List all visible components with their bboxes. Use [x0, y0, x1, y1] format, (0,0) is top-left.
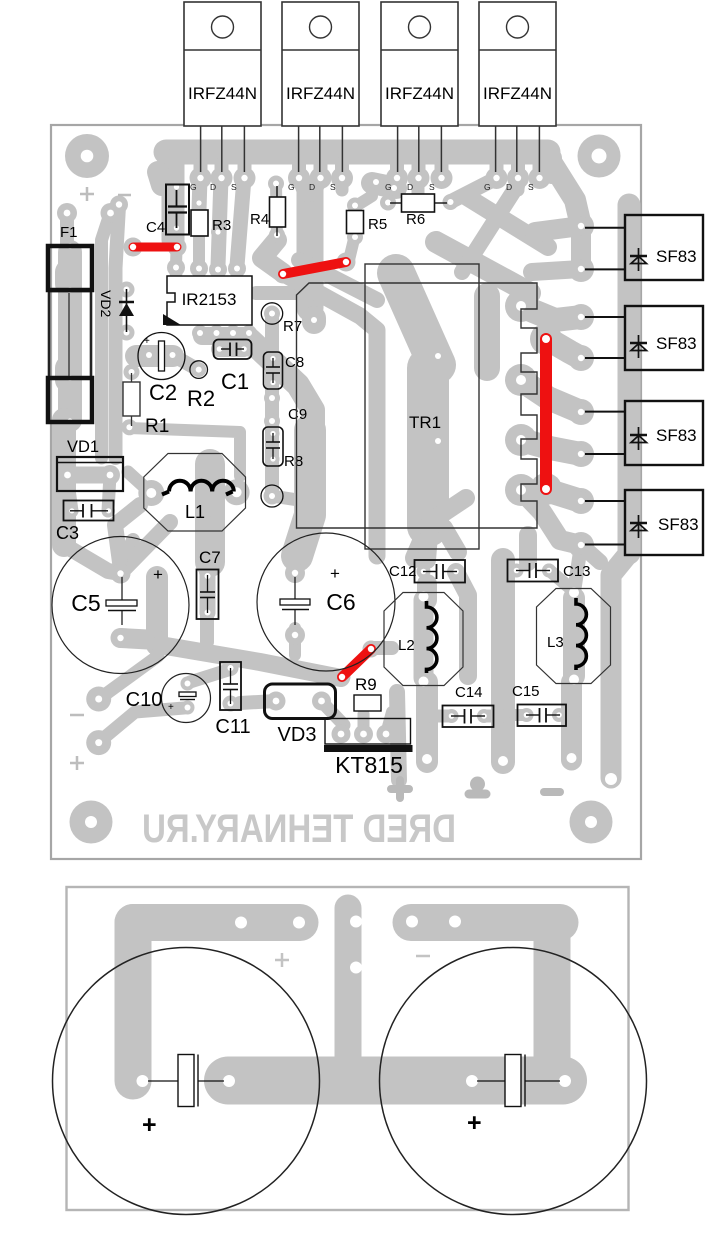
svg-text:C14: C14 [455, 684, 483, 701]
svg-text:S: S [231, 182, 237, 192]
svg-text:D: D [506, 182, 512, 192]
svg-text:C13: C13 [563, 563, 591, 580]
svg-text:G: G [190, 182, 197, 192]
svg-text:C11: C11 [215, 716, 250, 738]
svg-text:L2: L2 [398, 637, 415, 654]
svg-text:+: + [142, 1111, 157, 1139]
svg-text:SF83: SF83 [656, 334, 697, 353]
svg-text:SF83: SF83 [656, 247, 697, 266]
svg-text:D: D [309, 182, 315, 192]
svg-text:+: + [467, 1109, 482, 1137]
svg-text:IRFZ44N: IRFZ44N [188, 84, 257, 103]
svg-text:D: D [407, 182, 413, 192]
svg-text:F1: F1 [60, 224, 78, 241]
svg-text:S: S [528, 182, 534, 192]
svg-text:R3: R3 [212, 217, 231, 234]
svg-text:SF83: SF83 [656, 426, 697, 445]
svg-text:IR2153: IR2153 [182, 290, 237, 309]
svg-text:KT815: KT815 [335, 752, 403, 778]
svg-text:DRED TEHNARY.RU: DRED TEHNARY.RU [142, 807, 456, 851]
svg-text:SF83: SF83 [658, 515, 699, 534]
svg-text:R7: R7 [283, 318, 302, 335]
svg-text:S: S [429, 182, 435, 192]
svg-text:G: G [484, 182, 491, 192]
svg-text:TR1: TR1 [409, 413, 441, 432]
svg-text:+: + [168, 702, 174, 713]
svg-text:C9: C9 [288, 406, 307, 423]
svg-text:G: G [385, 182, 392, 192]
svg-text:R8: R8 [284, 453, 303, 470]
svg-text:R5: R5 [368, 216, 387, 233]
svg-text:C3: C3 [56, 523, 79, 543]
svg-text:VD1: VD1 [67, 438, 99, 456]
svg-text:S: S [330, 182, 336, 192]
svg-text:C7: C7 [199, 548, 221, 567]
svg-text:C12: C12 [389, 563, 417, 580]
svg-text:+: + [330, 564, 340, 583]
svg-text:L1: L1 [185, 502, 205, 522]
svg-text:D: D [210, 182, 216, 192]
svg-text:C10: C10 [126, 689, 163, 711]
svg-text:C1: C1 [221, 369, 249, 394]
svg-text:IRFZ44N: IRFZ44N [483, 84, 552, 103]
svg-text:R9: R9 [355, 675, 377, 694]
svg-text:+: + [144, 336, 150, 347]
svg-text:R2: R2 [187, 386, 215, 411]
svg-text:IRFZ44N: IRFZ44N [385, 84, 454, 103]
svg-text:C15: C15 [512, 683, 540, 700]
svg-text:R6: R6 [406, 211, 425, 228]
svg-text:+: + [153, 565, 163, 584]
svg-text:R4: R4 [250, 211, 269, 228]
svg-text:C2: C2 [149, 380, 177, 405]
svg-text:C5: C5 [71, 590, 100, 616]
svg-text:VD2: VD2 [98, 290, 114, 317]
svg-text:L3: L3 [547, 634, 564, 651]
svg-text:C6: C6 [326, 589, 355, 615]
svg-text:G: G [288, 182, 295, 192]
svg-text:R1: R1 [145, 416, 169, 437]
svg-text:IRFZ44N: IRFZ44N [286, 84, 355, 103]
svg-text:C4: C4 [146, 219, 165, 236]
svg-text:VD3: VD3 [278, 724, 317, 746]
svg-text:C8: C8 [285, 354, 304, 371]
